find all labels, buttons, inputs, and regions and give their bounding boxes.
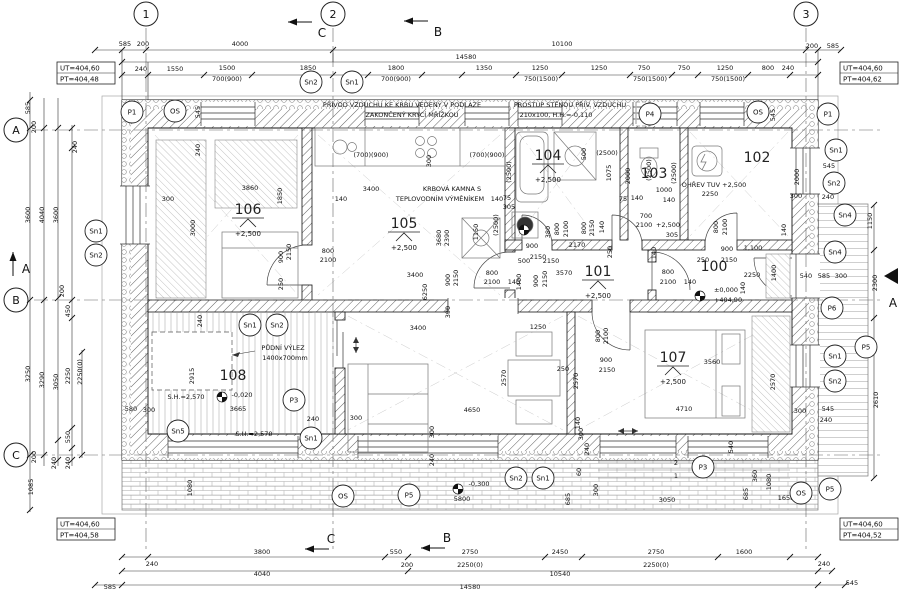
section-label: C (318, 26, 326, 40)
dim-label: 140 (631, 194, 643, 202)
window-right-107 (790, 345, 820, 387)
dim-label: 2100 (660, 278, 677, 286)
marker-label: Sn2 (828, 378, 841, 386)
axis-label: 1 (143, 8, 150, 21)
section-label: A (22, 262, 31, 276)
axis-label: B (12, 294, 20, 307)
room-number: 106 (235, 202, 262, 218)
slide-arrows (353, 337, 638, 434)
marker-label: P6 (828, 305, 837, 313)
dim-label: 2300 (871, 275, 879, 292)
dim-label: 2100 (320, 256, 337, 264)
dim-label: OHŘEV TUV +2,500 (682, 180, 746, 189)
dim-label: 2100 (721, 219, 729, 236)
dim-label: (700)(900) (470, 151, 505, 159)
dim-label: 800 (762, 64, 774, 72)
dim-label: 75 (619, 195, 627, 203)
dim-label: (700)(900) (354, 151, 389, 159)
kitchen-counter (315, 128, 505, 166)
dim-label: 1250 (717, 64, 734, 72)
elevation-box-line: PT=404,58 (60, 532, 99, 540)
elevation-box-line: UT=404,60 (843, 521, 883, 529)
dim-label: 2250(0) (76, 359, 84, 385)
dim-label: 550 (64, 431, 72, 443)
dim-label: 2570 (572, 373, 580, 390)
marker-label: P3 (290, 397, 299, 405)
dim-label: 545 (823, 162, 835, 170)
dim-label: 300 (835, 272, 847, 280)
dim-label: 900 (277, 251, 285, 263)
marker-label: Sn2 (304, 79, 317, 87)
marker-label: OS (338, 493, 349, 501)
dim-label: 3400 (410, 324, 427, 332)
dim-label: (2500) (596, 149, 618, 157)
dim-label: 585 (827, 42, 839, 50)
window-top-1 (201, 102, 255, 126)
dim-label: 14580 (456, 53, 477, 61)
axis-label: 3 (803, 8, 810, 21)
dim-label: 390 (444, 306, 452, 318)
dim-label: 750(1500) (711, 75, 745, 83)
floor-plan-drawing: 5852004000101002005851458024015501500700… (0, 0, 900, 600)
axis-label: A (12, 124, 20, 137)
marker-label: Sn4 (838, 212, 852, 220)
dim-label: 2000 (624, 168, 632, 185)
dim-label: 60 (575, 468, 583, 476)
dim-label: 3290 (38, 372, 46, 389)
dim-label: 240 (818, 560, 830, 568)
dim-label: TEPLOVODNÍM VÝMĚNÍKEM (395, 194, 484, 203)
dim-label: 550 (390, 548, 402, 556)
dim-label: 140 (574, 417, 582, 429)
dim-label: 1850 (276, 188, 284, 205)
dim-label: 2570 (500, 370, 508, 387)
dim-label: 500 (580, 148, 588, 160)
dim-label: 300 (790, 192, 802, 200)
marker-label: P3 (699, 464, 708, 472)
room-elev-triangle (590, 281, 606, 289)
dim-label: 210x100, H.H.=-0,110 (520, 111, 593, 119)
dim-label: PŘÍVOD VZDUCHU KE KRBU VEDENÝ V PODLAZE (323, 100, 481, 109)
dim-label: 545 (822, 405, 834, 413)
dim-label: S.H.=2,570 (235, 430, 272, 438)
room-elevation: +2,500 (535, 176, 561, 184)
dim-label: 545 (846, 579, 858, 587)
section-label: C (327, 532, 335, 546)
room-number: 104 (535, 148, 562, 164)
room-number: 100 (701, 259, 728, 275)
dim-label: 450 (64, 305, 72, 317)
dim-label: 700(900) (212, 75, 242, 83)
dim-label: 800 (580, 222, 588, 234)
room-number: 105 (391, 216, 418, 232)
dim-label: 5800 (454, 495, 471, 503)
dim-label: 360 (751, 470, 759, 482)
marker-label: P5 (405, 492, 414, 500)
dim-label: 300 (162, 195, 174, 203)
dim-label: KRBOVÁ KAMNA S (423, 184, 481, 193)
elevation-box-line: PT=404,62 (843, 76, 882, 84)
dim-label: 1850 (300, 64, 317, 72)
dim-label: 2750 (648, 548, 665, 556)
dim-label: 140 (739, 282, 747, 294)
room-number: 108 (220, 368, 247, 384)
dim-label: 2750 (462, 548, 479, 556)
dim-label: 140 (335, 195, 347, 203)
dim-label: 2570 (769, 374, 777, 391)
section-label: A (889, 296, 898, 310)
dim-label: 1600 (736, 548, 753, 556)
dim-label: 140 (650, 247, 658, 259)
dim-label: 2250 (744, 271, 761, 279)
dim-label: 240 (135, 65, 147, 73)
dim-label: 700(900) (381, 75, 411, 83)
dim-label: 2100 (484, 278, 501, 286)
dim-label: 1400x700mm (262, 354, 307, 362)
marker-label: Sn1 (345, 79, 358, 87)
dim-label: 750(1500) (633, 75, 667, 83)
room-number: 101 (585, 264, 612, 280)
dim-label: ZAKONČENÝ KRYCÍ MŘÍŽKOU (365, 110, 458, 119)
marker-label: Sn1 (828, 353, 841, 361)
dim-label: 900 (721, 245, 733, 253)
dim-label: 3860 (242, 184, 259, 192)
dim-label: 240 (146, 560, 158, 568)
dim-label: 300 (577, 428, 585, 440)
dim-label: 800 (322, 247, 334, 255)
dim-label: 3600 (52, 207, 60, 224)
sliding-door-108 (337, 320, 343, 368)
marker-label: Sn1 (536, 475, 549, 483)
dim-label: 3050 (52, 374, 60, 391)
dim-label: 3400 (407, 271, 424, 279)
marker-label: Sn2 (509, 475, 522, 483)
dim-label: (2500) (505, 161, 513, 183)
dim-label: -0,300 (469, 480, 490, 488)
marker-label: OS (753, 109, 764, 117)
dim-label: 1400 (515, 274, 523, 291)
dim-label: 300 (425, 155, 433, 167)
dim-label: 140 (684, 278, 696, 286)
dim-label: 1075 (605, 165, 613, 182)
marker-label: P5 (862, 344, 871, 352)
dim-label: 2150 (543, 257, 560, 265)
dim-label: 1250 (532, 64, 549, 72)
dim-label: 2250 (64, 368, 72, 385)
dim-label: 500 (518, 257, 530, 265)
dim-label: 2000 (793, 169, 801, 186)
dim-label: 1350 (476, 64, 493, 72)
dim-label: 1400 (770, 265, 778, 282)
dim-label: PROSTUP STĚNOU PŘÍV. VZDUCHU (514, 100, 627, 109)
dim-label: 300 (794, 407, 806, 415)
dim-label: 3680 (435, 230, 443, 247)
dim-label: 800 (553, 223, 561, 235)
room-elevation: +2,500 (391, 244, 417, 252)
marker-label: P4 (646, 111, 655, 119)
dim-label: 240 (307, 415, 319, 423)
dim-label: 540 (727, 441, 735, 453)
dim-label: 585 (104, 583, 116, 591)
dim-label: 240 (820, 416, 832, 424)
bed-107 (645, 330, 745, 418)
dim-label: 3570 (556, 269, 573, 277)
dim-label: 14580 (460, 583, 481, 591)
room-number: 102 (744, 150, 771, 166)
dim-label: 2170 (569, 241, 586, 249)
dim-label: 200 (137, 40, 149, 48)
dim-label: 545 (769, 109, 777, 121)
dim-label: 4710 (676, 405, 693, 413)
dim-label: 900 (600, 356, 612, 364)
dim-label: 1250 (591, 64, 608, 72)
dim-label: 685 (564, 493, 572, 505)
dim-label: 750 (678, 64, 690, 72)
dining-table (508, 332, 560, 424)
dim-label: 1550 (167, 65, 184, 73)
marker-label: OS (170, 108, 181, 116)
dim-label: 1085 (27, 479, 35, 496)
dim-label: 305 (666, 231, 678, 239)
dim-label: 1080 (765, 474, 773, 491)
dim-label: 200 (58, 285, 66, 297)
elevation-box-line: PT=404,48 (60, 76, 99, 84)
dim-label: 4040 (38, 207, 46, 224)
marker-label: Sn5 (171, 428, 184, 436)
dim-label: 4650 (464, 406, 481, 414)
floor-plan-page: 5852004000101002005851458024015501500700… (0, 0, 900, 600)
dim-label: 140 (598, 221, 606, 233)
dim-label: 3560 (704, 358, 721, 366)
marker-label: Sn1 (304, 435, 317, 443)
dim-label: 800 (594, 330, 602, 342)
dim-label: 250 (277, 278, 285, 290)
marker-label: Sn2 (827, 180, 840, 188)
dim-label: 2915 (188, 368, 196, 385)
dim-label: 2150 (599, 366, 616, 374)
dim-label: 6250 (421, 284, 429, 301)
dim-label: 3800 (254, 548, 271, 556)
dim-label: 2150 (452, 270, 460, 287)
room-number: 107 (660, 350, 687, 366)
marker-label: P1 (128, 109, 137, 117)
marker-label: OS (796, 490, 807, 498)
window-left (120, 186, 150, 244)
dim-label: +404,90 (714, 296, 742, 304)
dim-label: 4000 (232, 40, 249, 48)
room-elevation: +2,500 (235, 230, 261, 238)
window-top-6 (700, 102, 744, 126)
dim-label: 240 (782, 64, 794, 72)
dim-label: 750 (638, 64, 650, 72)
dim-label: 200 (30, 451, 38, 463)
dim-label: 140 (780, 224, 788, 236)
elevation-box-line: UT=404,60 (843, 65, 883, 73)
dim-label: 540 (800, 272, 812, 280)
dim-label: 4040 (254, 570, 271, 578)
dim-label: (2500) (492, 214, 500, 236)
dim-label: 545 (194, 106, 202, 118)
dim-label: 580 (125, 405, 137, 413)
dim-label: 900 (526, 242, 538, 250)
marker-label: Sn1 (829, 147, 842, 155)
dim-label: 1150 (866, 213, 874, 230)
room-elev-triangle (396, 233, 412, 241)
elevation-box-line: PT=404,52 (843, 532, 882, 540)
dim-label: 800 (486, 269, 498, 277)
dim-label: 1 (674, 472, 678, 480)
dim-label: 2 (674, 459, 678, 467)
dim-label: 585 (818, 272, 830, 280)
section-arrow-head (884, 268, 898, 284)
dim-label: 300 (143, 406, 155, 414)
dim-label: 140 (663, 196, 675, 204)
marker-label: Sn1 (89, 228, 102, 236)
section-arrow-head (421, 545, 430, 552)
dim-label: 2250(0) (643, 561, 669, 569)
dim-label: ±0,000 (714, 286, 738, 294)
dim-label: 700 (640, 212, 652, 220)
marker-label: Sn1 (243, 322, 256, 330)
bed-106 (222, 232, 298, 298)
dim-label: 2100 (602, 328, 610, 345)
dim-label: 75 (503, 194, 511, 202)
dim-label: 2250 (702, 190, 719, 198)
dim-label: 240 (428, 454, 436, 466)
marker-label: Sn2 (270, 322, 283, 330)
dim-label: 1,100 (744, 244, 763, 252)
dim-label: (2500) (670, 162, 678, 184)
section-arrow-head (404, 18, 413, 25)
opening-hall-living (448, 298, 518, 314)
section-label: B (434, 25, 442, 39)
dim-label: 2390 (443, 230, 451, 247)
boiler-102 (692, 146, 722, 176)
dim-label: 250 (606, 246, 614, 258)
bathtub-104 (516, 132, 548, 202)
marker-label: Sn2 (89, 252, 102, 260)
dim-label: 10100 (552, 40, 573, 48)
dim-label: 3050 (659, 496, 676, 504)
dim-label: 2150 (285, 244, 293, 261)
dim-label: 900 (444, 274, 452, 286)
dim-label: 3665 (230, 405, 247, 413)
dim-label: 3600 (24, 207, 32, 224)
elevation-box-line: UT=404,60 (60, 521, 100, 529)
dim-label: 1150 (472, 224, 480, 241)
dim-label: 585 (119, 40, 131, 48)
dim-label: 1000 (656, 186, 673, 194)
dim-label: 300 (428, 426, 436, 438)
marker-label: P5 (826, 486, 835, 494)
dim-label: S.H.=2,570 (167, 393, 204, 401)
dim-label: 800 (662, 268, 674, 276)
dim-label: 2100 (562, 221, 570, 238)
room-number: 103 (641, 166, 668, 182)
dim-label: 800 (712, 221, 720, 233)
dim-label: 1500 (219, 64, 236, 72)
section-label: B (443, 531, 451, 545)
elevation-box-line: UT=404,60 (60, 65, 100, 73)
dim-label: 140 (491, 195, 503, 203)
room-elevation: +2,500 (585, 292, 611, 300)
dim-label: 2150 (541, 271, 549, 288)
dim-label: 2450 (552, 548, 569, 556)
dim-label: 250 (557, 365, 569, 373)
dim-label: 380 (544, 226, 552, 238)
axis-label: C (12, 449, 20, 462)
dim-label: 900 (532, 275, 540, 287)
dim-label: 240 (194, 144, 202, 156)
room-elev-triangle (665, 367, 681, 375)
marker-label: Sn4 (828, 249, 842, 257)
dim-label: 2250(0) (457, 561, 483, 569)
dim-label: 300 (592, 484, 600, 496)
dim-label: 2150 (588, 220, 596, 237)
dim-label: 1080 (186, 480, 194, 497)
dim-label: 10540 (550, 570, 571, 578)
dim-label: 200 (401, 561, 413, 569)
section-arrow-head (305, 546, 314, 553)
dim-label: 240 (196, 315, 204, 327)
dim-label: 240 (583, 443, 591, 455)
marker-label: P1 (824, 111, 833, 119)
dim-label: 1800 (388, 64, 405, 72)
wardrobe-106 (156, 140, 297, 298)
dim-label: 1250 (530, 323, 547, 331)
dim-label: 3400 (363, 185, 380, 193)
dim-label: 2610 (872, 392, 880, 409)
dim-label: 305 (503, 203, 515, 211)
dim-label: 3250 (24, 366, 32, 383)
dim-label: 3000 (189, 220, 197, 237)
room-elevation: +2,500 (660, 378, 686, 386)
dim-label: 240 (71, 141, 79, 153)
dim-label: 300 (350, 414, 362, 422)
dim-label: 240 (50, 457, 58, 469)
section-arrow-head (10, 252, 17, 261)
dim-label: +2,500 (656, 221, 680, 229)
dim-label: 750(1500) (524, 75, 558, 83)
axis-label: 2 (330, 8, 337, 21)
dim-label: 2100 (636, 221, 653, 229)
dim-label: 685 (742, 488, 750, 500)
dim-label: PŮDNÍ VÝLEZ (261, 343, 305, 352)
section-arrow-head (288, 19, 297, 26)
room-elev-triangle (240, 219, 256, 227)
dim-label: -0,020 (232, 391, 253, 399)
dim-label: 240 (64, 457, 72, 469)
dim-label: 585 (24, 102, 32, 114)
